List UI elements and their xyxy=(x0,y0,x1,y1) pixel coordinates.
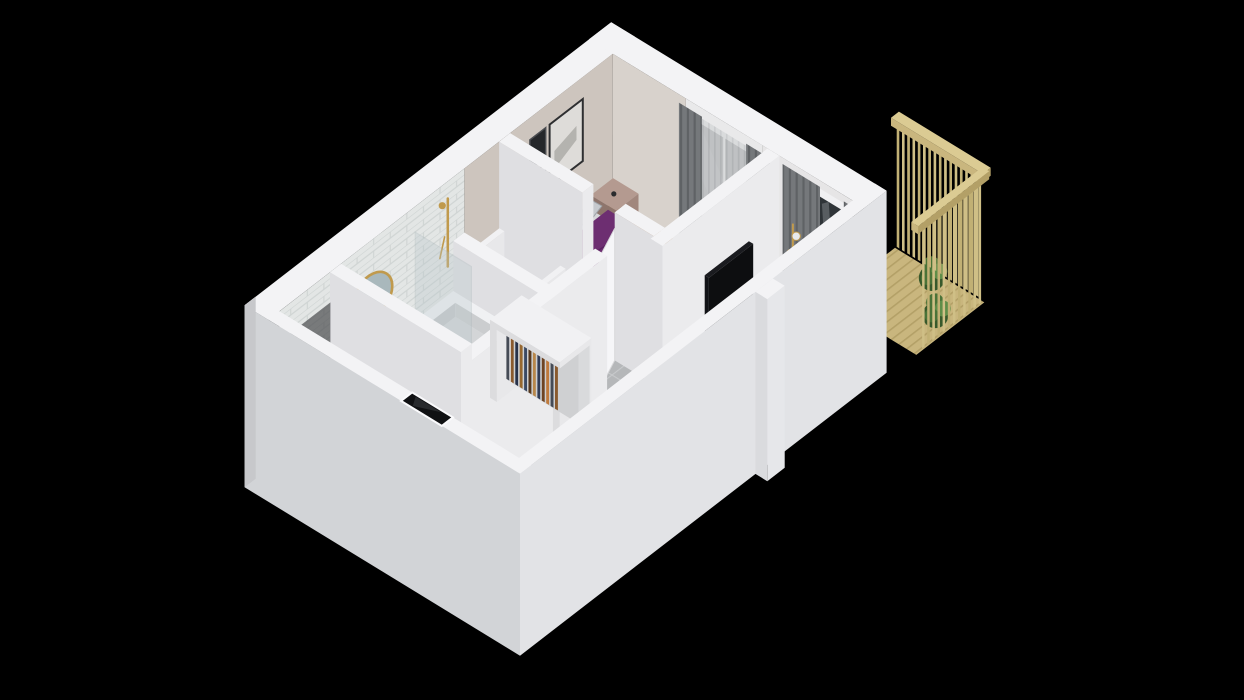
hanging-clothes xyxy=(529,348,532,394)
west-corner-cap xyxy=(245,297,256,488)
balcony-railing-slat xyxy=(932,217,935,341)
balcony-plant xyxy=(925,308,939,322)
balcony-railing-slat xyxy=(963,193,966,317)
balcony-railing-toprail xyxy=(891,118,983,182)
hanging-clothes xyxy=(511,338,514,384)
balcony-railing-slat xyxy=(927,221,930,345)
gold-floor-lamp-shade xyxy=(792,232,800,240)
hanging-clothes xyxy=(520,343,523,389)
balcony-pier xyxy=(767,286,784,481)
hanging-clothes xyxy=(515,340,518,386)
balcony-railing-slat xyxy=(948,205,951,329)
balcony-railing-slat xyxy=(913,135,916,259)
balcony-pier xyxy=(755,292,767,481)
balcony-railing-slat xyxy=(968,189,971,313)
hanging-clothes xyxy=(524,346,527,392)
alarm-clock xyxy=(611,191,616,196)
balcony-railing-slat xyxy=(907,131,910,255)
balcony-railing-slat xyxy=(938,213,941,337)
balcony-railing-slat xyxy=(918,138,921,262)
floorplan-stage: ❄ xyxy=(0,0,1244,700)
balcony-railing-slat xyxy=(958,197,961,321)
shower-head-gold xyxy=(439,202,446,209)
balcony-railing-slat xyxy=(979,181,982,305)
hanging-clothes xyxy=(551,362,554,408)
balcony-railing-slat xyxy=(973,185,976,309)
hanging-clothes xyxy=(542,357,545,403)
hanging-clothes xyxy=(546,359,549,405)
balcony-railing-slat xyxy=(943,209,946,333)
balcony-railing-slat xyxy=(922,225,925,349)
balcony-railing-slat xyxy=(897,125,900,249)
hanging-clothes xyxy=(533,351,536,397)
wardrobe-rack-hall xyxy=(490,320,497,402)
balcony-railing-slat xyxy=(976,173,979,297)
hanging-clothes xyxy=(537,354,540,400)
balcony-railing-slat xyxy=(953,201,956,325)
floorplan-3d-render: ❄ xyxy=(0,0,1244,700)
balcony-railing-slat xyxy=(902,128,905,252)
hanging-clothes xyxy=(506,335,509,381)
hanging-clothes xyxy=(555,365,558,411)
